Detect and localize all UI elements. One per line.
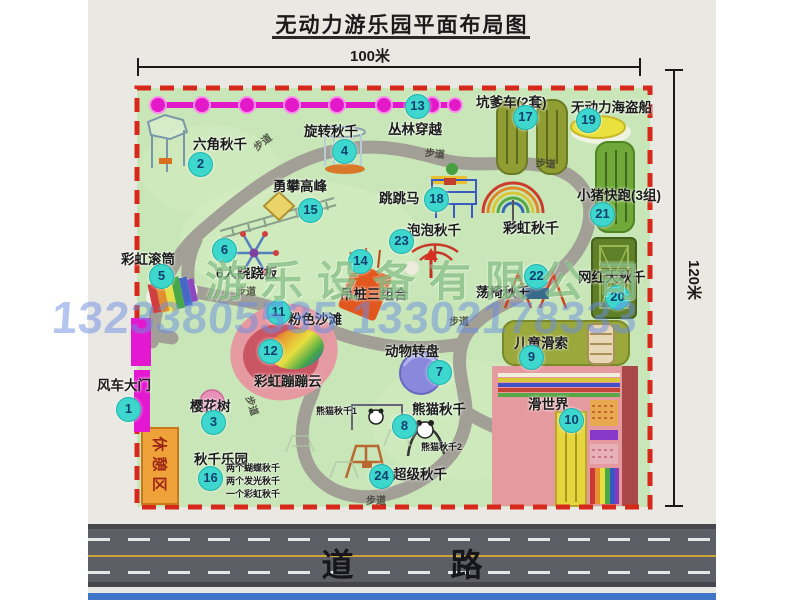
road-label: 道 路 bbox=[88, 540, 716, 586]
walkway-label: 步道 bbox=[424, 144, 445, 161]
attraction-label-23: 泡泡秋千 bbox=[407, 219, 461, 239]
attraction-badge-16: 16 bbox=[198, 466, 223, 491]
extra-label: 彩虹秋千 bbox=[503, 218, 559, 238]
bottom-blue-strip bbox=[88, 593, 716, 600]
extra-label: 熊猫秋千1 bbox=[316, 404, 357, 417]
attraction-label-15: 勇攀高峰 bbox=[273, 175, 327, 195]
page-title: 无动力游乐园平面布局图 bbox=[88, 9, 716, 39]
extra-label: 熊猫秋千2 bbox=[421, 440, 462, 453]
extra-label: 两个蝴蝶秋千 bbox=[226, 461, 280, 474]
attraction-badge-17: 17 bbox=[513, 105, 538, 130]
attraction-badge-24: 24 bbox=[369, 464, 394, 489]
attraction-label-17: 坑爹车(2套) bbox=[476, 91, 547, 111]
rest-area-label: 休憩区 bbox=[150, 431, 171, 503]
attraction-badge-15: 15 bbox=[298, 198, 323, 223]
watermark-phone: 13233805535 13302178333 bbox=[50, 292, 640, 344]
title-underline bbox=[272, 36, 530, 39]
attraction-label-12: 彩虹蹦蹦云 bbox=[254, 370, 322, 390]
attraction-badge-3: 3 bbox=[201, 410, 226, 435]
walkway-label: 步道 bbox=[366, 492, 386, 507]
attraction-label-8: 熊猫秋千 bbox=[412, 398, 466, 418]
attraction-badge-21: 21 bbox=[590, 202, 615, 227]
attraction-badge-18: 18 bbox=[424, 187, 449, 212]
attraction-label-24: 超级秋千 bbox=[393, 463, 447, 483]
height-dimension-label: 120米 bbox=[684, 240, 705, 320]
attraction-label-18: 跳跳马 bbox=[379, 187, 420, 207]
attraction-badge-8: 8 bbox=[392, 414, 417, 439]
attraction-badge-4: 4 bbox=[332, 139, 357, 164]
attraction-badge-1: 1 bbox=[116, 397, 141, 422]
attraction-badge-2: 2 bbox=[188, 152, 213, 177]
attraction-label-1: 风车大门 bbox=[97, 374, 151, 394]
walkway-label: 步道 bbox=[536, 154, 557, 170]
attraction-label-4: 旋转秋千 bbox=[304, 120, 358, 140]
extra-label: 两个发光秋千 bbox=[226, 474, 280, 487]
screenshot: 无动力游乐园平面布局图 100米 120米 休憩区 风车大门1六角秋千2樱花树3… bbox=[0, 0, 800, 600]
extra-label: 一个彩虹秋千 bbox=[226, 487, 280, 500]
attraction-badge-19: 19 bbox=[576, 108, 601, 133]
attraction-badge-13: 13 bbox=[405, 94, 430, 119]
attraction-label-2: 六角秋千 bbox=[193, 133, 247, 153]
attraction-badge-10: 10 bbox=[559, 408, 584, 433]
width-dimension-label: 100米 bbox=[310, 45, 430, 66]
road: 道 路 bbox=[88, 524, 716, 587]
attraction-badge-9: 9 bbox=[519, 345, 544, 370]
attraction-label-13: 丛林穿越 bbox=[388, 118, 442, 138]
attraction-badge-5: 5 bbox=[149, 264, 174, 289]
attraction-label-21: 小猪快跑(3组) bbox=[577, 184, 661, 204]
attraction-badge-7: 7 bbox=[427, 360, 452, 385]
